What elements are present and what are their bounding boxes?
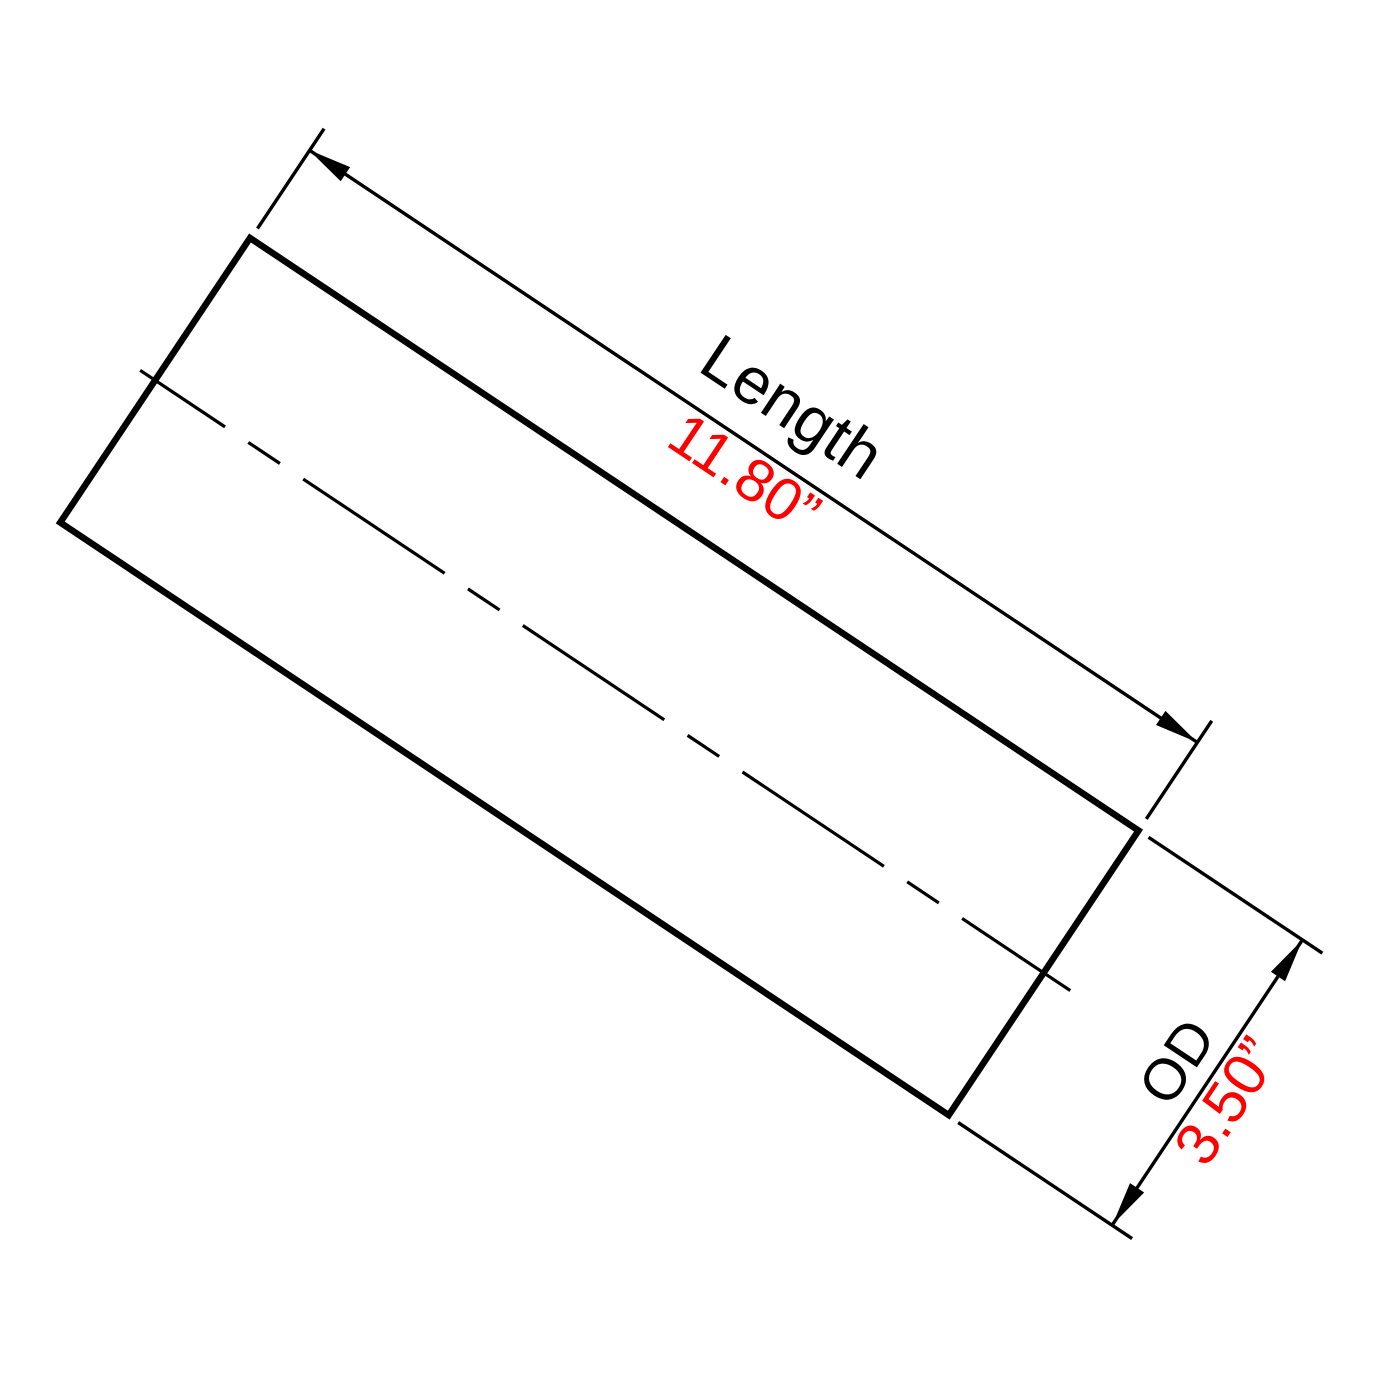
od-arrowhead-bottom-icon <box>1106 1183 1145 1229</box>
length-extension-line-left <box>257 129 324 229</box>
tube-centerline <box>140 370 1070 990</box>
drawing-page: Length 11.80” OD 3.50” <box>0 0 1400 1400</box>
drawing-canvas: Length 11.80” OD 3.50” <box>0 0 1400 1400</box>
od-extension-line-bottom <box>958 1123 1132 1239</box>
od-extension-line-top <box>1149 837 1323 953</box>
tube-drawing-group: Length 11.80” OD 3.50” <box>45 63 1400 1258</box>
length-extension-line-right <box>1146 721 1211 819</box>
